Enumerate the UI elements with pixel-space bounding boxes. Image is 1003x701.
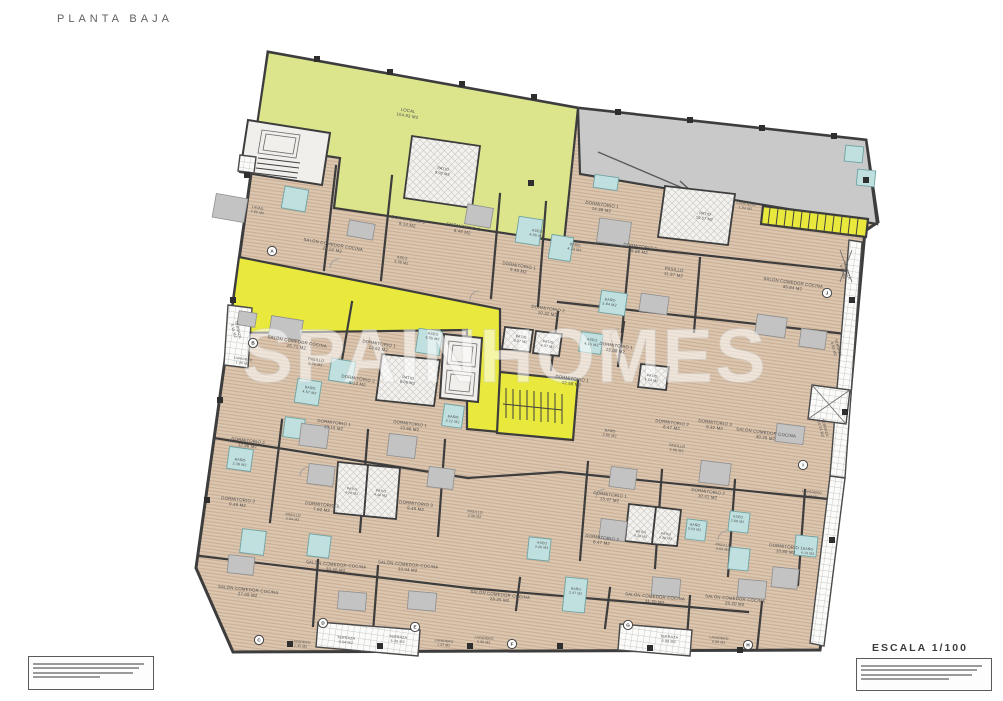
fineprint-left	[28, 656, 154, 690]
page-title: PLANTA BAJA	[57, 13, 173, 25]
fineprint-line	[33, 667, 139, 669]
section-marker-label: E	[413, 625, 416, 630]
fineprint-line	[33, 663, 144, 665]
section-marker-label: J	[826, 291, 829, 296]
room-label: PASILLO2.94 M2	[285, 512, 301, 522]
fineprint-line	[861, 678, 949, 680]
watermark-text: SPAINHOMES	[242, 314, 767, 399]
fineprint-line	[861, 665, 982, 667]
room-label: ASEO3.26 M2	[535, 540, 549, 550]
fineprint-line	[861, 674, 972, 676]
room-label: BAÑO3.12 M2	[445, 413, 460, 424]
section-marker-label: F	[511, 642, 514, 647]
fineprint-line	[33, 676, 100, 678]
room-label: BAÑO2.47 M2	[569, 585, 583, 596]
fineprint-right	[856, 658, 992, 691]
room-label: PASILLO2.96 M2	[467, 509, 483, 519]
section-marker-label: I	[802, 463, 803, 468]
floor-plan-page: SPAINHOMES LOCAL104.93 M2PATIO9.00 M2LAV…	[0, 0, 1003, 701]
section-marker-label: G	[626, 623, 630, 628]
scale-label: ESCALA 1/100	[860, 642, 980, 654]
room-label: ASEO2.66 M2	[731, 514, 746, 524]
fineprint-line	[33, 672, 133, 674]
room-label: BAÑO3.36 M2	[232, 456, 247, 467]
room-label: BAÑO5.94 M2	[602, 296, 618, 307]
room-label: BAÑO3.60 M2	[602, 427, 617, 438]
room-label: PASILLO3.63 M2	[715, 542, 731, 552]
room-label: PATIO4.29 M2	[634, 529, 648, 539]
room-label: PATIO4.38 M2	[659, 531, 673, 541]
fineprint-line	[861, 669, 977, 671]
room-label: BAÑO3.03 M2	[688, 521, 703, 532]
room-label: PATIO4.28 M2	[345, 486, 359, 496]
room-label: PATIO4.48 M2	[374, 488, 388, 498]
room-label: BAÑO4.13 M2	[801, 545, 816, 556]
floor-plan-canvas: SPAINHOMES LOCAL104.93 M2PATIO9.00 M2LAV…	[0, 0, 1003, 701]
